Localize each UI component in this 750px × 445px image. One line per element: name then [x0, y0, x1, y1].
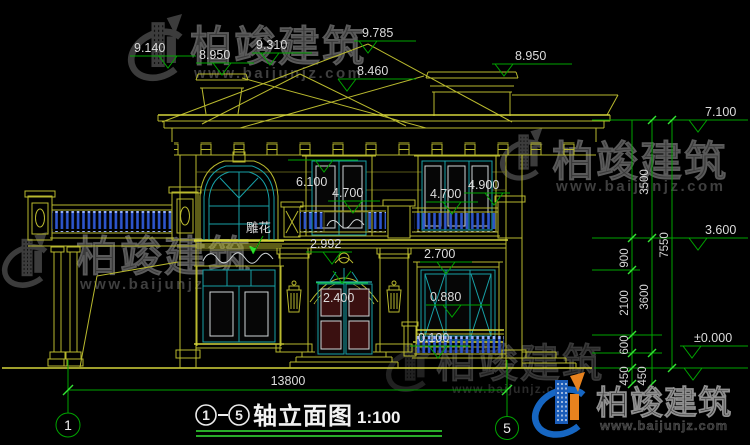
building-elevation — [2, 44, 618, 368]
watermark-logo-right — [497, 128, 552, 185]
dim-label-900: 900 — [619, 248, 631, 267]
elevation-label: 2.700 — [424, 247, 455, 261]
drawing-title: 1 5 轴立面图 1:100 — [196, 402, 442, 436]
elevation-label: 9.785 — [362, 26, 393, 40]
dim-label-13800: 13800 — [271, 374, 306, 388]
marker-3600: 3.600 — [688, 223, 748, 250]
marker-2992: 2.992 — [306, 237, 352, 264]
left-window — [194, 266, 284, 348]
elevation-label: 4.900 — [468, 178, 499, 192]
elevation-label: 8.460 — [357, 64, 388, 78]
dim-label-450a: 450 — [619, 366, 631, 385]
elevation-label: 8.950 — [199, 48, 230, 62]
title-scale: 1:100 — [357, 408, 400, 427]
elevation-label: 4.700 — [430, 187, 461, 201]
elevation-label: 6.100 — [296, 175, 327, 189]
page-title: 轴立面图 — [253, 402, 353, 430]
marker-7100: 7.100 — [688, 105, 748, 132]
balcony-pier — [383, 200, 415, 238]
dim-label-450b: 450 — [637, 366, 649, 385]
watermark-logo-left — [0, 232, 57, 292]
carving-label: 雕花 — [246, 220, 271, 235]
dentil-band — [174, 142, 596, 155]
brand-name: 柏竣建筑 — [596, 384, 732, 421]
elevation-label: 0.100 — [418, 331, 449, 345]
elevation-label: ±0.000 — [694, 331, 732, 345]
elevation-label: 0.880 — [430, 290, 461, 304]
elevation-label: 4.700 — [332, 186, 363, 200]
marker-ground — [684, 368, 702, 380]
wall-lamp-left — [287, 281, 301, 312]
axis-bubble-1: 1 — [56, 413, 80, 437]
elevation-label: 2.400 — [323, 291, 354, 305]
elevation-label: 3.600 — [705, 223, 736, 237]
cad-drawing-viewport: 柏竣建筑 www.baijunjz.com 柏竣建筑 www.baijunjz.… — [0, 0, 750, 445]
elevation-label: 9.140 — [134, 41, 165, 55]
elevation-label: 7.100 — [705, 105, 736, 119]
dim-label-7550: 7550 — [659, 232, 671, 258]
dim-label-3500: 3500 — [639, 169, 651, 195]
dim-label-2100: 2100 — [619, 290, 631, 316]
elevation-drawing-canvas: 柏竣建筑 www.baijunjz.com 柏竣建筑 www.baijunjz.… — [0, 0, 750, 445]
title-block: 1 5 1 5 轴立面图 1:100 — [56, 402, 519, 440]
upper-cornice — [158, 115, 610, 155]
pergola-balusters — [52, 211, 172, 232]
axis-number-right: 5 — [503, 420, 511, 436]
wall-lamp-right — [387, 281, 401, 312]
title-axis-from: 1 — [202, 407, 210, 423]
title-axis-to: 5 — [235, 407, 243, 423]
elevation-label: 9.310 — [256, 38, 287, 52]
brand-url: www.baijunjz.com — [599, 418, 728, 433]
elevation-label: 8.950 — [515, 49, 546, 63]
axis-bubble-5: 5 — [496, 417, 519, 440]
dim-label-3600: 3600 — [639, 284, 651, 310]
elevation-label: 2.992 — [310, 237, 341, 251]
dim-label-600: 600 — [619, 335, 631, 354]
axis-number-left: 1 — [64, 417, 72, 433]
marker-0000: ±0.000 — [680, 331, 748, 358]
